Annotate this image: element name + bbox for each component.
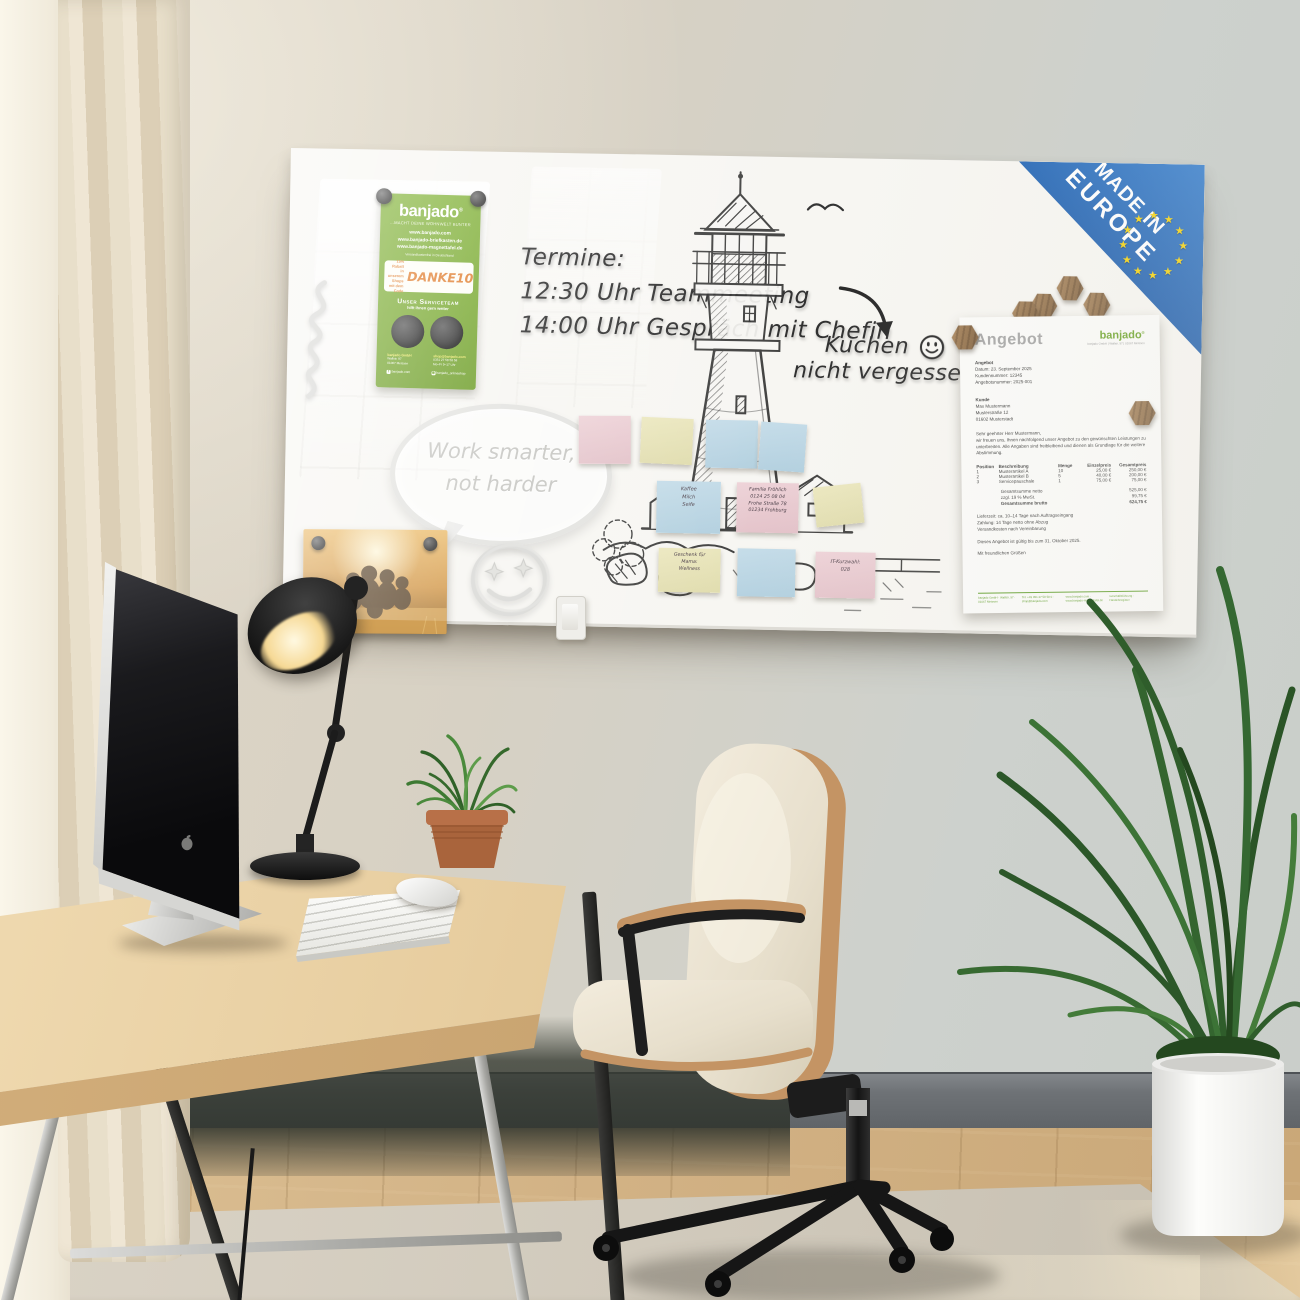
sticky-note-kaffee[interactable]: Kaffee Milch Seife <box>656 481 721 534</box>
potted-palm-plant <box>940 540 1300 1300</box>
document-brand-sub: banjado GmbH | Wallstr. 97 | 01067 Meiss… <box>1087 342 1144 346</box>
sticky-note-blank[interactable] <box>737 548 796 597</box>
handwriting-cake-line2: nicht vergessen <box>792 358 977 386</box>
lamp-arm <box>300 729 338 845</box>
round-magnet[interactable] <box>423 537 437 551</box>
instagram-link: ◉banjado_onlineshop <box>431 371 465 376</box>
sticky-text: IT-Kurzwahl: 028 <box>815 552 875 574</box>
flyer-contact-left: banjado GmbH Wallstr. 97 01067 Meissen <box>387 353 412 366</box>
smiley-icon <box>918 334 945 361</box>
handwriting-cake-note: Kuchen nicht vergessen <box>792 331 978 386</box>
bubble-text: Work smarter, not harder <box>395 435 608 502</box>
flyer-brand-logo: banjado® <box>380 200 481 222</box>
eu-star-icon: ★ <box>1175 225 1187 237</box>
facebook-link: fbanjado.com <box>387 370 411 375</box>
sticky-text: Kaffee Milch Seife <box>656 481 720 509</box>
hex-magnet[interactable] <box>1083 293 1110 317</box>
total-gross-row: Gesamtsumme brutto624,75 € <box>977 499 1147 506</box>
eu-star-icon: ★ <box>1178 240 1190 252</box>
desk-lamp[interactable] <box>228 572 398 902</box>
sticky-note-blank[interactable] <box>758 421 807 472</box>
sticky-note-geschenk[interactable]: Geschenk für Mama: Wellness <box>658 548 721 593</box>
sticky-note-blank[interactable] <box>640 417 694 465</box>
sticky-note-blank[interactable] <box>579 416 631 464</box>
hex-magnet[interactable] <box>952 325 979 349</box>
office-chair[interactable] <box>540 718 960 1300</box>
eu-star-icon: ★ <box>1134 213 1146 225</box>
home-office-scene: banjado® …MACHT DEINE WOHNWELT BUNTER ww… <box>0 0 1300 1300</box>
document-meta: Angebot Datum: 23. September 2025 Kunden… <box>975 358 1145 386</box>
sticky-text: Geschenk für Mama: Wellness <box>658 548 720 573</box>
eu-star-icon: ★ <box>1174 255 1186 267</box>
light-switch[interactable] <box>556 596 586 640</box>
table-row: 3Servicepauschale175,00 €75,00 € <box>977 477 1147 484</box>
flyer-content: banjado® …MACHT DEINE WOHNWELT BUNTER ww… <box>376 193 482 390</box>
flyer-urls: www.banjado.com www.banjado-briefkasten.… <box>380 228 481 253</box>
dog-photo <box>430 316 464 350</box>
badge-text: MADE IN EUROPE <box>1049 137 1190 280</box>
document-terms: Lieferzeit: ca. 10–14 Tage nach Auftrags… <box>977 511 1147 533</box>
flyer-contact: banjado GmbH Wallstr. 97 01067 Meissen s… <box>376 353 476 368</box>
instagram-icon: ◉ <box>431 371 435 375</box>
star-smiley-doodle <box>464 537 554 623</box>
desk-plant <box>400 722 520 872</box>
discount-code: DANKE10 <box>407 269 474 285</box>
banjado-flyer: banjado® …MACHT DEINE WOHNWELT BUNTER ww… <box>376 193 482 390</box>
lamp-base <box>250 852 360 880</box>
hex-magnet[interactable] <box>1129 401 1156 425</box>
flyer-dog-photos <box>377 314 478 350</box>
dog-photo <box>391 315 425 349</box>
eu-star-icon: ★ <box>1122 254 1134 266</box>
document-brand-block: banjado® banjado GmbH | Wallstr. 97 | 01… <box>1087 328 1145 346</box>
imac-shadow <box>118 934 288 952</box>
apple-logo-icon <box>180 834 194 851</box>
flyer-shipping-note: Versandkostenfrei in Deutschland <box>379 252 479 258</box>
discount-text: 15% Rabatt in unserem Shops mit dem Code <box>384 259 404 294</box>
sticky-note-kurzwahl[interactable]: IT-Kurzwahl: 028 <box>815 552 876 599</box>
document-intro: Sehr geehrter Herr Mustermann, wir freue… <box>976 429 1148 456</box>
sticky-note-blank[interactable] <box>705 420 758 469</box>
discount-box: 15% Rabatt in unserem Shops mit dem Code… <box>384 260 474 294</box>
sticky-text: Familie Fröhlich 0124 25 08 04 Frohe Str… <box>736 482 799 514</box>
flyer-social: fbanjado.com ◉banjado_onlineshop <box>376 370 476 377</box>
eu-star-icon: ★ <box>1118 239 1130 251</box>
document-title: Angebot <box>975 329 1044 348</box>
flyer-url: www.banjado-magnettafel.de <box>380 243 480 253</box>
squiggle-doodle <box>298 278 340 401</box>
handwriting-cake-line1: Kuchen <box>825 333 910 360</box>
eu-star-icon: ★ <box>1133 265 1145 277</box>
lamp-cap <box>344 576 368 600</box>
document-customer: Kunde Max Mustermann Musterstraße 12 016… <box>975 395 1145 423</box>
sticky-note-froehlich[interactable]: Familie Fröhlich 0124 25 08 04 Frohe Str… <box>736 482 799 533</box>
flyer-contact-right: shop@banjado.com 0351 27 58 58 58 Mo–Fr … <box>433 355 466 368</box>
round-magnet[interactable] <box>311 536 325 550</box>
facebook-icon: f <box>387 370 391 374</box>
eu-star-icon: ★ <box>1149 210 1161 222</box>
hex-magnet[interactable] <box>1056 276 1083 300</box>
eu-star-icon: ★ <box>1123 224 1135 236</box>
document-brand-logo: banjado® <box>1087 328 1144 342</box>
sticky-note-blank[interactable] <box>813 483 865 528</box>
bird-sketch <box>806 197 846 216</box>
document-table: Position Beschreibung Menge Einzelpreis … <box>976 462 1146 484</box>
eu-star-icon: ★ <box>1163 266 1175 278</box>
eu-star-icon: ★ <box>1148 270 1160 282</box>
